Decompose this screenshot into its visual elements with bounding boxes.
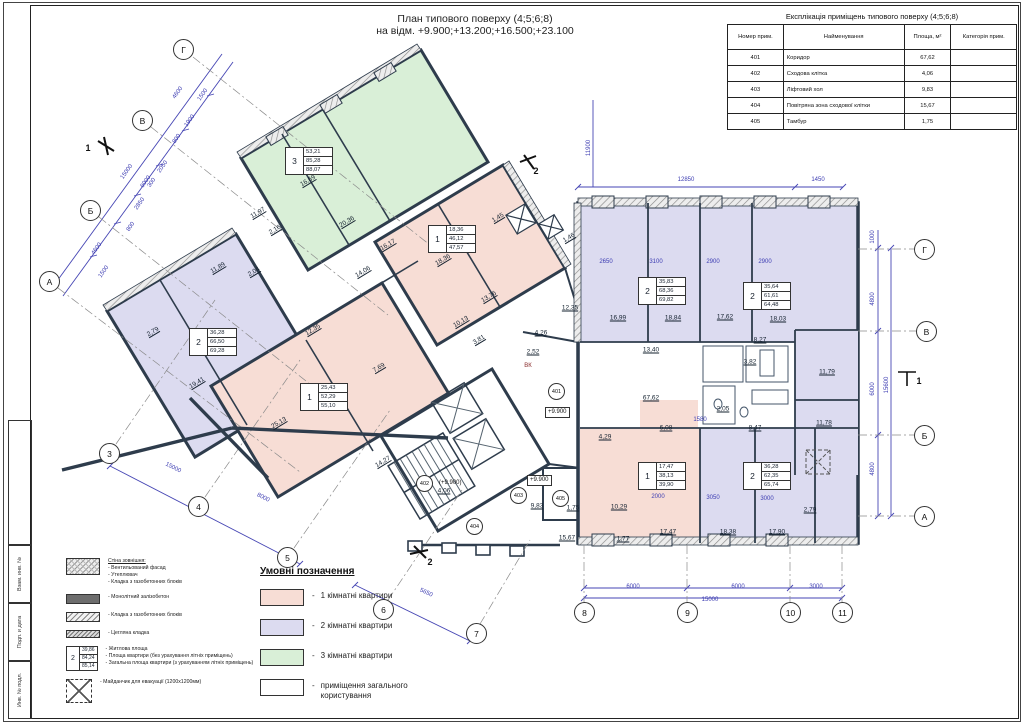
table-cell: 403	[728, 82, 784, 98]
table-cell: 402	[728, 66, 784, 82]
table-column-header: Площа, м²	[904, 25, 951, 50]
table-cell: 1,75	[904, 114, 951, 130]
explication-title: Експлікація приміщень типового поверху (…	[727, 12, 1017, 21]
materials-text-line: - Утеплювач	[108, 572, 182, 579]
legend-item-label: 3 кімнатні квартири	[321, 649, 393, 661]
table-cell: Повітряна зона сходової клітки	[783, 98, 904, 114]
legend-dash: -	[312, 649, 315, 661]
materials-item-text: - Кладка з газобетонних блоків	[108, 612, 182, 619]
materials-legend: Стіна зовнішня:- Вентильований фасад- Ут…	[66, 558, 266, 711]
sample-tag-number: 2	[67, 647, 80, 670]
table-cell	[951, 98, 1017, 114]
table-cell: 9,83	[904, 82, 951, 98]
legend-dash: -	[312, 679, 315, 691]
legend-item-label: 1 кімнатні квартири	[321, 589, 393, 601]
legend-item-label: 2 кімнатні квартири	[321, 619, 393, 631]
materials-text-line: - Кладка з газобетонних блоків	[108, 579, 182, 586]
materials-legend-item: - Цегляна кладка	[66, 630, 266, 638]
table-row: 404Повітряна зона сходової клітки15,67	[728, 98, 1017, 114]
sw-evac-swatch	[66, 679, 92, 703]
materials-item-text: - Монолітний залізобетон	[108, 594, 169, 601]
plan-title: План типового поверху (4;5;6;8) на відм.…	[285, 13, 665, 37]
materials-legend-item: Стіна зовнішня:- Вентильований фасад- Ут…	[66, 558, 266, 586]
materials-item-text: - Цегляна кладка	[108, 630, 149, 637]
materials-legend-item: 239,8684,2485,14- Житлова площа- Площа к…	[66, 646, 266, 671]
drawing-sheet: План типового поверху (4;5;6;8) на відм.…	[0, 0, 1024, 725]
sw-wallext-swatch	[66, 558, 100, 575]
table-cell: 401	[728, 50, 784, 66]
materials-text-line: - Житлова площа	[106, 646, 254, 653]
materials-text-line: - Монолітний залізобетон	[108, 594, 169, 601]
legend-dash: -	[312, 589, 315, 601]
right-wing	[574, 196, 858, 546]
materials-text-line: - Площа квартири (без урахування літніх …	[106, 653, 254, 660]
table-cell: Ліфтовий хол	[783, 82, 904, 98]
sample-tag-value: 39,86	[80, 647, 97, 655]
table-cell	[951, 50, 1017, 66]
materials-item-text: - Майданчик для евакуації (1200х1200мм)	[100, 679, 201, 686]
table-cell	[951, 66, 1017, 82]
legend-item-label: приміщення загального користування	[321, 679, 450, 701]
legend-item: -1 кімнатні квартири	[260, 589, 450, 606]
sw-aer-swatch	[66, 612, 100, 622]
table-cell: 404	[728, 98, 784, 114]
sample-apartment-tag: 239,8684,2485,14	[66, 646, 98, 671]
materials-legend-item: - Кладка з газобетонних блоків	[66, 612, 266, 622]
table-cell: Коридор	[783, 50, 904, 66]
table-column-header: Найменування	[783, 25, 904, 50]
sample-tag-values: 39,8684,2485,14	[80, 647, 97, 670]
materials-text-line: - Загальна площа квартири (з урахуванням…	[106, 660, 254, 667]
table-row: 405Тамбур1,75	[728, 114, 1017, 130]
sw-conc-swatch	[66, 594, 100, 604]
table-cell: 4,06	[904, 66, 951, 82]
table-cell	[951, 114, 1017, 130]
table-cell: Сходова клітка	[783, 66, 904, 82]
table-cell: 15,67	[904, 98, 951, 114]
table-cell	[951, 82, 1017, 98]
materials-text-line: Стіна зовнішня:	[108, 558, 182, 565]
legend-title: Умовні позначення	[260, 566, 450, 577]
table-cell: 67,62	[904, 50, 951, 66]
plan-title-line2: на відм. +9.900;+13.200;+16.500;+23.100	[285, 25, 665, 37]
table-column-header: Номер прим.	[728, 25, 784, 50]
legend-item: -приміщення загального користування	[260, 679, 450, 701]
materials-item-text: - Житлова площа- Площа квартири (без ура…	[106, 646, 254, 667]
legend-dash: -	[312, 619, 315, 631]
sample-tag-value: 85,14	[80, 663, 97, 670]
legend-swatch	[260, 619, 304, 636]
table-row: 401Коридор67,62	[728, 50, 1017, 66]
legend-swatch	[260, 679, 304, 696]
legend-item: -3 кімнатні квартири	[260, 649, 450, 666]
materials-legend-item: - Монолітний залізобетон	[66, 594, 266, 604]
table-cell: Тамбур	[783, 114, 904, 130]
materials-text-line: - Майданчик для евакуації (1200х1200мм)	[100, 679, 201, 686]
sample-tag-value: 84,24	[80, 655, 97, 663]
materials-legend-item: - Майданчик для евакуації (1200х1200мм)	[66, 679, 266, 703]
materials-item-text: Стіна зовнішня:- Вентильований фасад- Ут…	[108, 558, 182, 586]
table-cell: 405	[728, 114, 784, 130]
apartment-legend: Умовні позначення -1 кімнатні квартири-2…	[260, 566, 450, 714]
legend-swatch	[260, 589, 304, 606]
materials-text-line: - Цегляна кладка	[108, 630, 149, 637]
materials-text-line: - Вентильований фасад	[108, 565, 182, 572]
materials-text-line: - Кладка з газобетонних блоків	[108, 612, 182, 619]
explication-table: Експлікація приміщень типового поверху (…	[727, 12, 1017, 130]
legend-item: -2 кімнатні квартири	[260, 619, 450, 636]
legend-swatch	[260, 649, 304, 666]
plan-title-line1: План типового поверху (4;5;6;8)	[285, 13, 665, 25]
table-column-header: Категорія прим.	[951, 25, 1017, 50]
sw-brick-swatch	[66, 630, 100, 638]
table-row: 402Сходова клітка4,06	[728, 66, 1017, 82]
table-row: 403Ліфтовий хол9,83	[728, 82, 1017, 98]
